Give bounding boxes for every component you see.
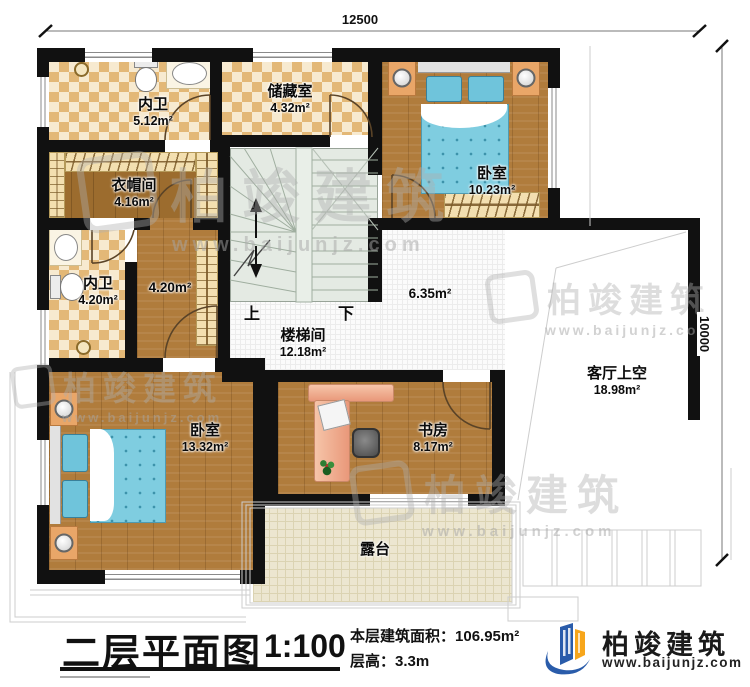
title-underline-2 — [60, 676, 150, 678]
sink-icon — [49, 228, 82, 266]
wall — [492, 370, 505, 506]
nightstand-icon — [388, 60, 416, 96]
wall — [368, 230, 382, 302]
pillow-icon — [426, 76, 462, 102]
plant-icon — [318, 458, 336, 476]
bed-headboard — [50, 426, 61, 524]
window-icon — [85, 48, 152, 62]
wall — [193, 218, 230, 230]
wall — [222, 135, 330, 147]
room-label-closet: 衣帽间4.16m² — [111, 178, 156, 209]
room-label-hall-area: 6.35m² — [409, 286, 452, 301]
floor-plan-canvas: 12500 10000 柏竣建筑 www.baijunjz.com 柏竣建筑 w… — [0, 0, 750, 687]
floor-area-info: 本层建筑面积：106.95m² — [350, 625, 519, 646]
floor-height-info: 层高：3.3m — [350, 650, 429, 671]
hallway-shelf-icon — [196, 240, 218, 346]
room-label-living-void: 客厅上空18.98m² — [587, 366, 647, 397]
closet-rail-top-icon — [65, 152, 196, 172]
shower-icon — [74, 62, 89, 77]
stair-down-label: 下 — [338, 300, 354, 324]
wall — [468, 494, 505, 506]
scale-label: 1:100 — [264, 628, 346, 665]
closet-shelf-left-icon — [49, 152, 65, 218]
wall — [125, 262, 137, 358]
wall — [37, 140, 165, 152]
wall — [218, 152, 230, 372]
title-block: 二层平面图 1:100 本层建筑面积：106.95m² 层高：3.3m 柏竣建筑… — [0, 615, 750, 687]
toilet-icon — [132, 57, 160, 93]
window-icon — [370, 495, 468, 505]
shower-icon — [76, 340, 91, 355]
dimension-right: 10000 — [697, 312, 712, 356]
right-dimension-line — [716, 40, 728, 566]
bed-icon — [50, 426, 166, 524]
nightstand-icon — [512, 60, 540, 96]
wall — [368, 48, 382, 175]
window-icon — [105, 570, 240, 584]
wall — [368, 218, 382, 230]
window-icon — [37, 440, 49, 505]
pillow-icon — [62, 480, 88, 518]
closet-shelf-right-icon — [196, 152, 218, 218]
brand-url: www.baijunjz.com — [602, 655, 743, 670]
stair-up-label: 上 — [244, 300, 260, 324]
chair-icon — [352, 428, 380, 458]
bed-blanket-fold — [90, 429, 114, 521]
pillow-icon — [62, 434, 88, 472]
brand-logo-icon — [540, 619, 598, 677]
window-icon — [548, 88, 560, 188]
window-icon — [37, 77, 49, 127]
wall — [210, 62, 222, 152]
room-label-study: 书房8.17m² — [413, 423, 453, 454]
wall — [548, 218, 700, 230]
room-label-storage: 储藏室4.32m² — [267, 84, 312, 115]
room-label-terrace: 露台 — [360, 542, 390, 559]
wall — [134, 218, 150, 230]
wall — [265, 370, 278, 506]
wall — [265, 494, 370, 506]
nightstand-icon — [50, 526, 78, 560]
pillow-icon — [468, 76, 504, 102]
room-label-bath-left: 内卫4.20m² — [78, 276, 118, 307]
wall — [382, 218, 560, 230]
room-label-bedroom-bottom: 卧室13.32m² — [182, 423, 229, 454]
room-label-hallway-area: 4.20m² — [149, 280, 192, 295]
room-label-bedroom-top: 卧室10.23m² — [469, 166, 516, 197]
title-underline — [60, 667, 340, 671]
wall — [37, 358, 163, 372]
nightstand-icon — [50, 392, 78, 426]
stairs-area — [230, 148, 378, 302]
wall — [253, 358, 265, 584]
window-icon — [253, 48, 332, 62]
room-label-bath-top: 内卫5.12m² — [133, 97, 173, 128]
wall — [37, 218, 90, 230]
dimension-top: 12500 — [338, 12, 382, 27]
window-icon — [37, 310, 49, 365]
room-label-stairwell: 楼梯间12.18m² — [280, 328, 327, 359]
